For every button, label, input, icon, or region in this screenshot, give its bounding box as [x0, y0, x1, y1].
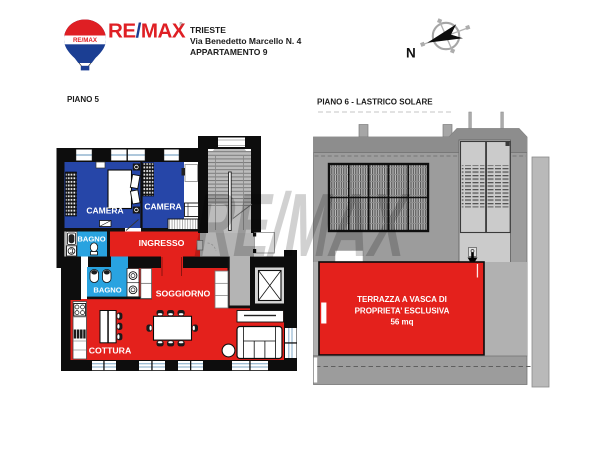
- svg-text:BAGNO: BAGNO: [93, 286, 121, 295]
- svg-text:56 mq: 56 mq: [390, 317, 413, 326]
- svg-text:Via Benedetto Marcello N. 4: Via Benedetto Marcello N. 4: [190, 36, 302, 46]
- svg-text:N: N: [406, 46, 416, 61]
- svg-text:PIANO 5: PIANO 5: [67, 95, 100, 104]
- svg-text:RE/MAX: RE/MAX: [188, 174, 416, 275]
- svg-text:APPARTAMENTO 9: APPARTAMENTO 9: [190, 47, 268, 57]
- svg-text:RE/MAX: RE/MAX: [73, 37, 98, 44]
- svg-text:INGRESSO: INGRESSO: [139, 238, 185, 248]
- svg-text:®: ®: [179, 21, 183, 28]
- svg-text:TRIESTE: TRIESTE: [190, 25, 226, 35]
- svg-text:BAGNO: BAGNO: [77, 235, 105, 244]
- svg-text:PIANO 6 - LASTRICO SOLARE: PIANO 6 - LASTRICO SOLARE: [317, 97, 433, 106]
- svg-text:TERRAZZA A VASCA DI: TERRAZZA A VASCA DI: [357, 295, 447, 304]
- svg-text:PROPRIETA’ ESCLUSIVA: PROPRIETA’ ESCLUSIVA: [355, 306, 450, 315]
- svg-text:SOGGIORNO: SOGGIORNO: [156, 289, 211, 299]
- svg-text:RE/MAX: RE/MAX: [108, 20, 186, 43]
- svg-text:CAMERA: CAMERA: [144, 202, 181, 212]
- svg-text:COTTURA: COTTURA: [89, 345, 132, 355]
- svg-text:CAMERA: CAMERA: [86, 206, 123, 216]
